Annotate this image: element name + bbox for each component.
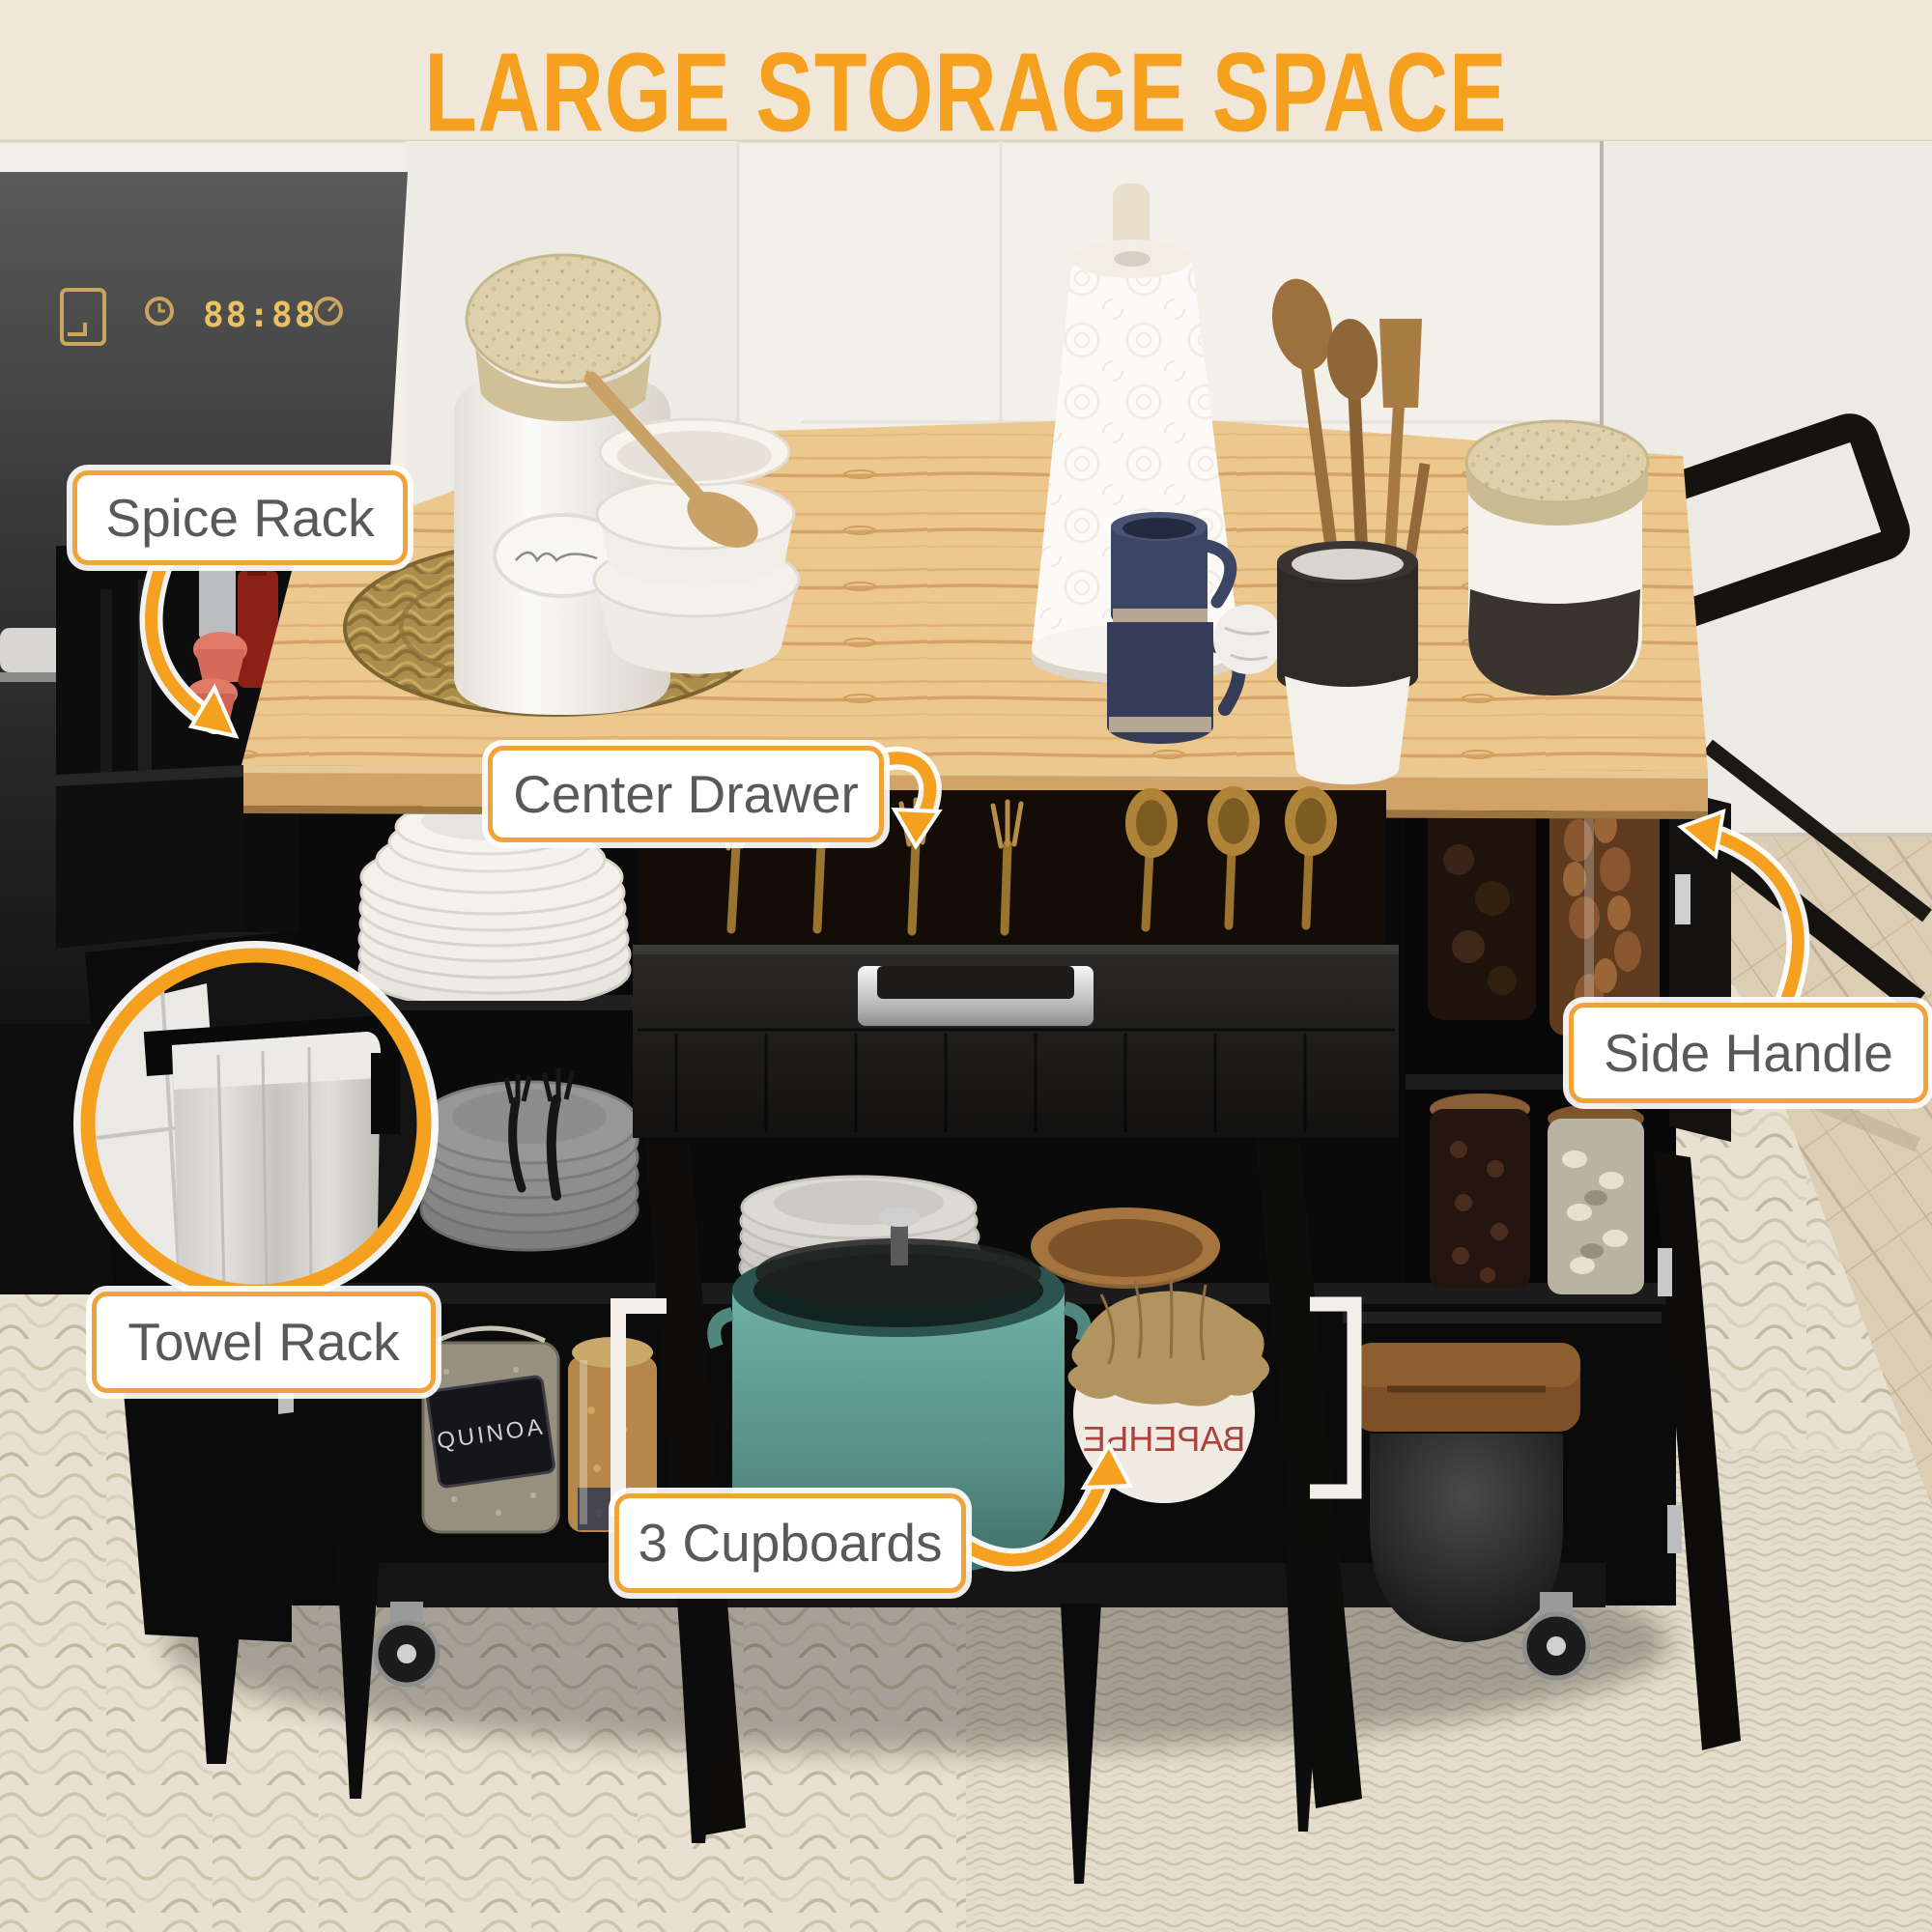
- gray-plates-stack: [421, 1068, 638, 1250]
- kitchen-scene: 88:88: [0, 0, 1932, 1932]
- hinge-icon: [1658, 1248, 1672, 1296]
- callout-side-handle: Side Handle: [1569, 1003, 1928, 1103]
- callout-towel-rack-text: Towel Rack: [128, 1316, 399, 1369]
- almond-jar: [1549, 782, 1660, 1036]
- white-bean-jar: [1548, 1104, 1644, 1294]
- callout-cupboards: 3 Cupboards: [614, 1493, 966, 1593]
- callout-towel-rack: Towel Rack: [92, 1292, 436, 1393]
- wooden-bowl: [1031, 1207, 1220, 1289]
- spice-drawer-front: [56, 765, 243, 949]
- hinge-icon: [1667, 1505, 1682, 1553]
- page-title: LARGE STORAGE SPACE: [0, 29, 1932, 144]
- towel-rack-magnifier: [78, 946, 434, 1301]
- chocolate-jar: [1428, 796, 1536, 1020]
- oven-clock-display: 88:88: [203, 296, 317, 335]
- quinoa-jar: QUINOA: [423, 1328, 558, 1532]
- coffee-bean-jar: [1430, 1094, 1530, 1289]
- callout-spice-rack-text: Spice Rack: [105, 492, 374, 545]
- callout-cupboards-text: 3 Cupboards: [639, 1517, 943, 1570]
- callout-center-drawer-text: Center Drawer: [513, 768, 859, 821]
- hinge-icon: [1675, 874, 1690, 924]
- product-feature-image: 88:88: [0, 0, 1932, 1932]
- drawer-handle: [858, 966, 1094, 1026]
- callout-spice-rack: Spice Rack: [72, 470, 408, 565]
- callout-center-drawer: Center Drawer: [488, 746, 884, 842]
- callout-side-handle-text: Side Handle: [1604, 1027, 1893, 1080]
- marble-sphere: [1213, 605, 1283, 674]
- canister-with-cork-lid: [1466, 421, 1648, 696]
